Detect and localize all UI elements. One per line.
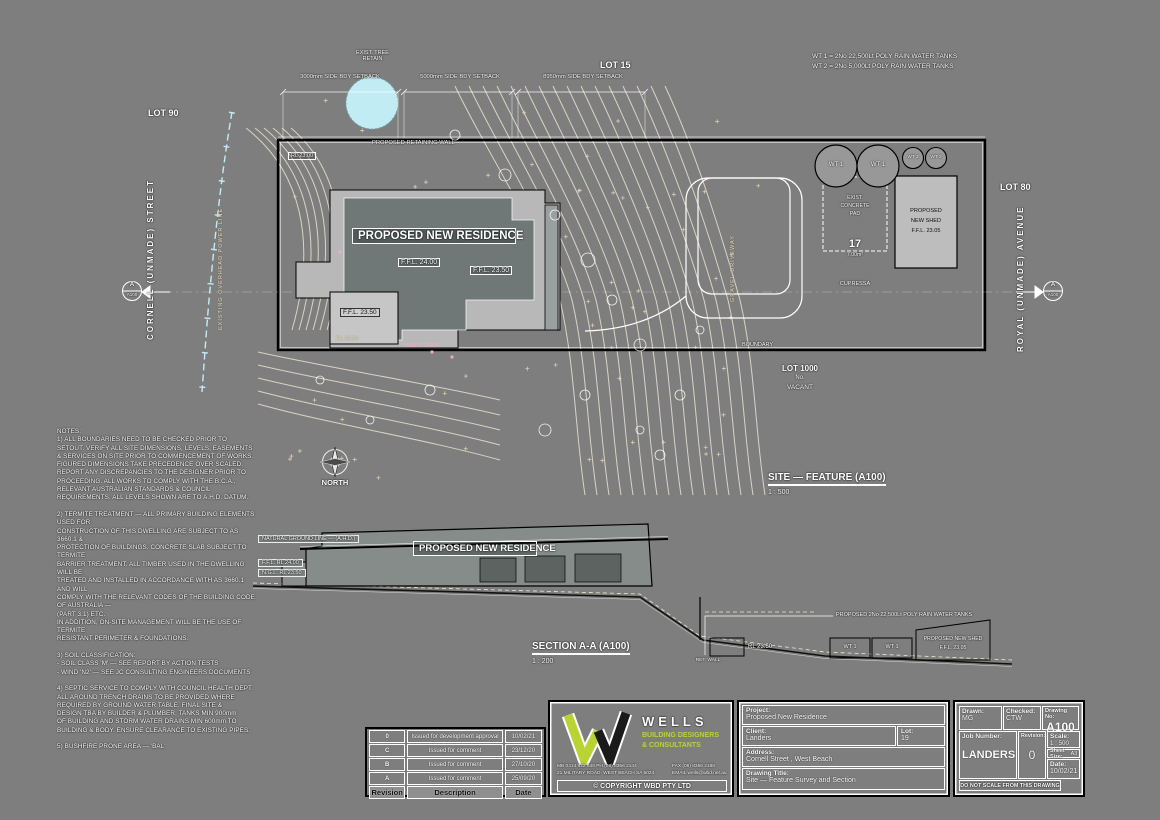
address-label: Address: <box>746 749 941 756</box>
section-view-title: SECTION A-A (A100) <box>532 641 630 655</box>
general-notes: NOTES: 1) ALL BOUNDARIES NEED TO BE CHEC… <box>57 428 257 752</box>
tree-species-label: CUPRESSA <box>820 281 890 287</box>
wt2-label-a: WT 2 <box>903 155 923 160</box>
tree-17-area: 7.00m² <box>826 252 884 258</box>
company-contact4: EMAIL wells@wbd.net.au <box>672 771 727 776</box>
revision-row: 0 Issued for development approval 10/02/… <box>368 730 543 743</box>
shed-line2: NEW SHED <box>897 216 955 226</box>
section-wt1a-label: WT 1 <box>830 644 870 650</box>
lot-1000-vacant: VACANT <box>765 384 835 391</box>
drawing-no-label: Drawing No: <box>1045 708 1076 720</box>
north-label: NORTH <box>315 478 355 487</box>
lot-90-label: LOT 90 <box>148 108 179 118</box>
drawn-value: MG <box>962 715 999 722</box>
wt1-label-b: WT 1 <box>860 162 896 168</box>
lot-1000-no: No. <box>765 375 835 381</box>
company-contact2: 21 MILITARY ROAD, WEST BEACH SA 5024 <box>557 771 654 776</box>
section-ngl-label: N.G.L. RL 23.50 <box>258 569 306 577</box>
revision-row: A Issued for comment 25/09/20 <box>368 772 543 785</box>
company-copyright: © COPYRIGHT WBD PTY LTD <box>557 780 727 792</box>
tree-note: EXIST. TREE RETAIN <box>345 50 400 62</box>
section-residence-label: PROPOSED NEW RESIDENCE <box>413 541 537 556</box>
rl-deck-label: RL 23.30 <box>336 336 358 342</box>
revision-header-row: Revision Description Date <box>368 786 543 799</box>
rev-header: Revision <box>369 786 405 799</box>
date-cell: 23/12/20 <box>505 744 542 757</box>
revision-table: 0 Issued for development approval 10/02/… <box>365 727 546 797</box>
titleblock-row2: Job Number: LANDERS Revision: 0 Scale: 1… <box>959 731 1079 779</box>
company-block: WELLS BUILDING DESIGNERS & CONSULTANTS M… <box>548 700 734 797</box>
lot-label: Lot: <box>901 728 941 735</box>
section-marker-right-sheet: A100 <box>1043 292 1063 297</box>
section-shed-line1: PROPOSED NEW SHED <box>916 636 990 642</box>
company-contact3: FAX (08) 8356 2188 <box>672 764 715 769</box>
section-ffl-label: F.F.L. RL 24.00 <box>258 559 303 567</box>
lot-cell: Lot: 19 <box>897 726 945 746</box>
revision-label: Revision: <box>1021 733 1043 739</box>
company-contact1: MB 0414 822 848 PH (08) 8356 2144 <box>557 764 637 769</box>
desc-header: Description <box>407 786 502 799</box>
drawn-label: Drawn: <box>962 708 999 715</box>
section-wt1b-label: WT 1 <box>872 644 912 650</box>
no-scale-warning: DO NOT SCALE FROM THIS DRAWING <box>959 780 1061 791</box>
client-row: Client: Landers Lot: 19 <box>742 726 945 746</box>
ffl-main-label: F.F.L. 24.00 <box>398 258 440 267</box>
pad-line2: CONCRETE <box>826 202 884 210</box>
drawing-no-cell: Drawing No: A100 <box>1042 706 1079 730</box>
section-marker-left-sheet: A100 <box>122 292 142 297</box>
scale-column: Scale: 1 : 500 Sheet Size: A3 Date: 10/0… <box>1047 731 1080 779</box>
scale-cell: Scale: 1 : 500 <box>1047 731 1080 748</box>
scale-label: Scale: <box>1050 733 1077 740</box>
timber-deck-label: TIMBER DECK <box>402 343 440 349</box>
dim-setback-2: 5000mm SIDE BDY SETBACK <box>412 74 508 80</box>
wt2-label-b: WT 2 <box>926 155 946 160</box>
client-value: Landers <box>746 735 892 742</box>
title-block: Drawn: MG Checked: CTW Drawing No: A100 … <box>953 700 1085 797</box>
lot-15-label: LOT 15 <box>600 60 631 70</box>
date-cell: 25/09/20 <box>505 772 542 785</box>
date-header: Date <box>505 786 542 799</box>
tank-note-line2: WT 2 = 2No 5,000Lt POLY RAIN WATER TANKS <box>812 62 957 72</box>
date-label: Date: <box>1050 761 1077 768</box>
company-tagline1: BUILDING DESIGNERS <box>642 732 719 739</box>
section-marker-symbols <box>123 282 1063 301</box>
section-retwall-label: RET. WALL <box>692 658 724 663</box>
ffl-right-label: F.F.L. 23.50 <box>470 266 512 275</box>
retaining-wall-note: PROPOSED RETAINING WALL <box>372 140 455 146</box>
client-label: Client: <box>746 728 892 735</box>
job-number-cell: Job Number: LANDERS <box>959 731 1017 779</box>
titleblock-row1: Drawn: MG Checked: CTW Drawing No: A100 <box>959 706 1079 730</box>
revision-row: C Issued for comment 23/12/20 <box>368 744 543 757</box>
desc-cell: Issued for comment <box>407 744 502 757</box>
checked-value: CTW <box>1006 715 1038 722</box>
company-name: WELLS <box>642 714 708 729</box>
site-view-scale: 1 : 500 <box>768 489 789 496</box>
street-left-label: CORNELL (UNMADE) STREET <box>146 179 155 340</box>
scale-value: 1 : 500 <box>1050 740 1077 747</box>
wells-logo <box>560 709 632 765</box>
project-value: Proposed New Residence <box>746 714 941 721</box>
drawing-title-value: Site — Feature Survey and Section <box>746 777 941 784</box>
drawn-cell: Drawn: MG <box>959 706 1002 730</box>
tank-note-line1: WT 1 = 2No 22,500Lt POLY RAIN WATER TANK… <box>812 52 957 62</box>
rev-cell: 0 <box>369 730 405 743</box>
job-value: LANDERS <box>962 749 1014 761</box>
section-view-scale: 1 : 200 <box>532 658 553 665</box>
wt1-label-a: WT 1 <box>818 162 854 168</box>
dim-setback-1: 3000mm SIDE BDY SETBACK <box>288 74 392 80</box>
rev-cell: C <box>369 744 405 757</box>
boundary-label: BOUNDARY <box>742 342 773 348</box>
address-value: Cornell Street , West Beach <box>746 756 941 763</box>
revision-cell: Revision: 0 <box>1018 731 1046 779</box>
revision-value: 0 <box>1021 748 1043 762</box>
drawing-sheet: LOT 90 LOT 15 LOT 80 LOT 1000 No. VACANT… <box>0 0 1160 820</box>
lot-80-label: LOT 80 <box>1000 182 1031 192</box>
sheet-size-cell: Sheet Size: A3 <box>1047 749 1080 758</box>
section-rl-label: RL 23.50 <box>748 644 772 650</box>
street-right-label: ROYAL (UNMADE) AVENUE <box>1016 206 1025 352</box>
residence-footprint <box>296 190 560 348</box>
project-row: Project: Proposed New Residence <box>742 705 945 725</box>
date-cell: 10/02/21 <box>505 730 542 743</box>
north-arrow <box>320 447 350 477</box>
date-cell: Date: 10/02/21 <box>1047 759 1080 779</box>
job-label: Job Number: <box>962 733 1014 740</box>
sheet-size-label: Sheet Size: <box>1050 748 1069 760</box>
shed-label: PROPOSED NEW SHED F.F.L. 23.05 <box>897 206 955 236</box>
section-marker-left-letter: A <box>122 282 142 288</box>
rl-note: RL 23.00 <box>288 152 316 160</box>
concrete-pad-label: EXIST. CONCRETE PAD <box>826 194 884 218</box>
existing-tree-canopy <box>346 77 398 129</box>
drawing-title-row: Drawing Title: Site — Feature Survey and… <box>742 768 945 790</box>
checked-label: Checked: <box>1006 708 1038 715</box>
address-row: Address: Cornell Street , West Beach <box>742 747 945 767</box>
rev-cell: A <box>369 772 405 785</box>
desc-cell: Issued for development approval <box>407 730 502 743</box>
desc-cell: Issued for comment <box>407 772 502 785</box>
tree-17-label: 17 <box>826 238 884 250</box>
dimension-lines <box>280 89 648 140</box>
lot-value: 19 <box>901 735 941 742</box>
desc-cell: Issued for comment <box>407 758 502 771</box>
shed-line3: F.F.L. 23.05 <box>897 226 955 236</box>
sheet-size-value: A3 <box>1071 751 1078 757</box>
date-value: 10/02/21 <box>1050 768 1077 775</box>
tree-note-line2: RETAIN <box>345 56 400 62</box>
rev-cell: B <box>369 758 405 771</box>
section-marker-right-letter: A <box>1043 282 1063 288</box>
dim-setback-3: 8950mm SIDE BDY SETBACK <box>528 74 638 80</box>
client-cell: Client: Landers <box>742 726 896 746</box>
site-view-title: SITE — FEATURE (A100) <box>768 472 886 486</box>
section-ground-label: NATURAL GROUND LINE — (A.H.D.) <box>258 535 359 543</box>
drawing-title-label: Drawing Title: <box>746 770 941 777</box>
driveway-label: GRAVEL DRIVEWAY <box>730 235 736 302</box>
date-cell: 27/10/20 <box>505 758 542 771</box>
revision-row: B Issued for comment 27/10/20 <box>368 758 543 771</box>
power-line-label: EXISTING OVERHEAD POWER LINE <box>218 208 224 330</box>
residence-label: PROPOSED NEW RESIDENCE <box>352 228 516 244</box>
pad-line1: EXIST. <box>826 194 884 202</box>
ffl-garage-label: F.F.L. 23.50 <box>340 308 380 317</box>
lot-1000-label: LOT 1000 <box>765 364 835 373</box>
pad-line3: PAD <box>826 210 884 218</box>
section-tank-leader: PROPOSED 2No 22,500Lt POLY RAIN WATER TA… <box>836 612 972 618</box>
section-shed-line2: F.F.L. 23.05 <box>916 645 990 651</box>
project-block: Project: Proposed New Residence Client: … <box>737 700 950 797</box>
company-tagline2: & CONSULTANTS <box>642 742 701 749</box>
water-main-line <box>202 112 232 392</box>
shed-line1: PROPOSED <box>897 206 955 216</box>
project-label: Project: <box>746 707 941 714</box>
tank-note: WT 1 = 2No 22,500Lt POLY RAIN WATER TANK… <box>812 52 957 73</box>
checked-cell: Checked: CTW <box>1003 706 1041 730</box>
